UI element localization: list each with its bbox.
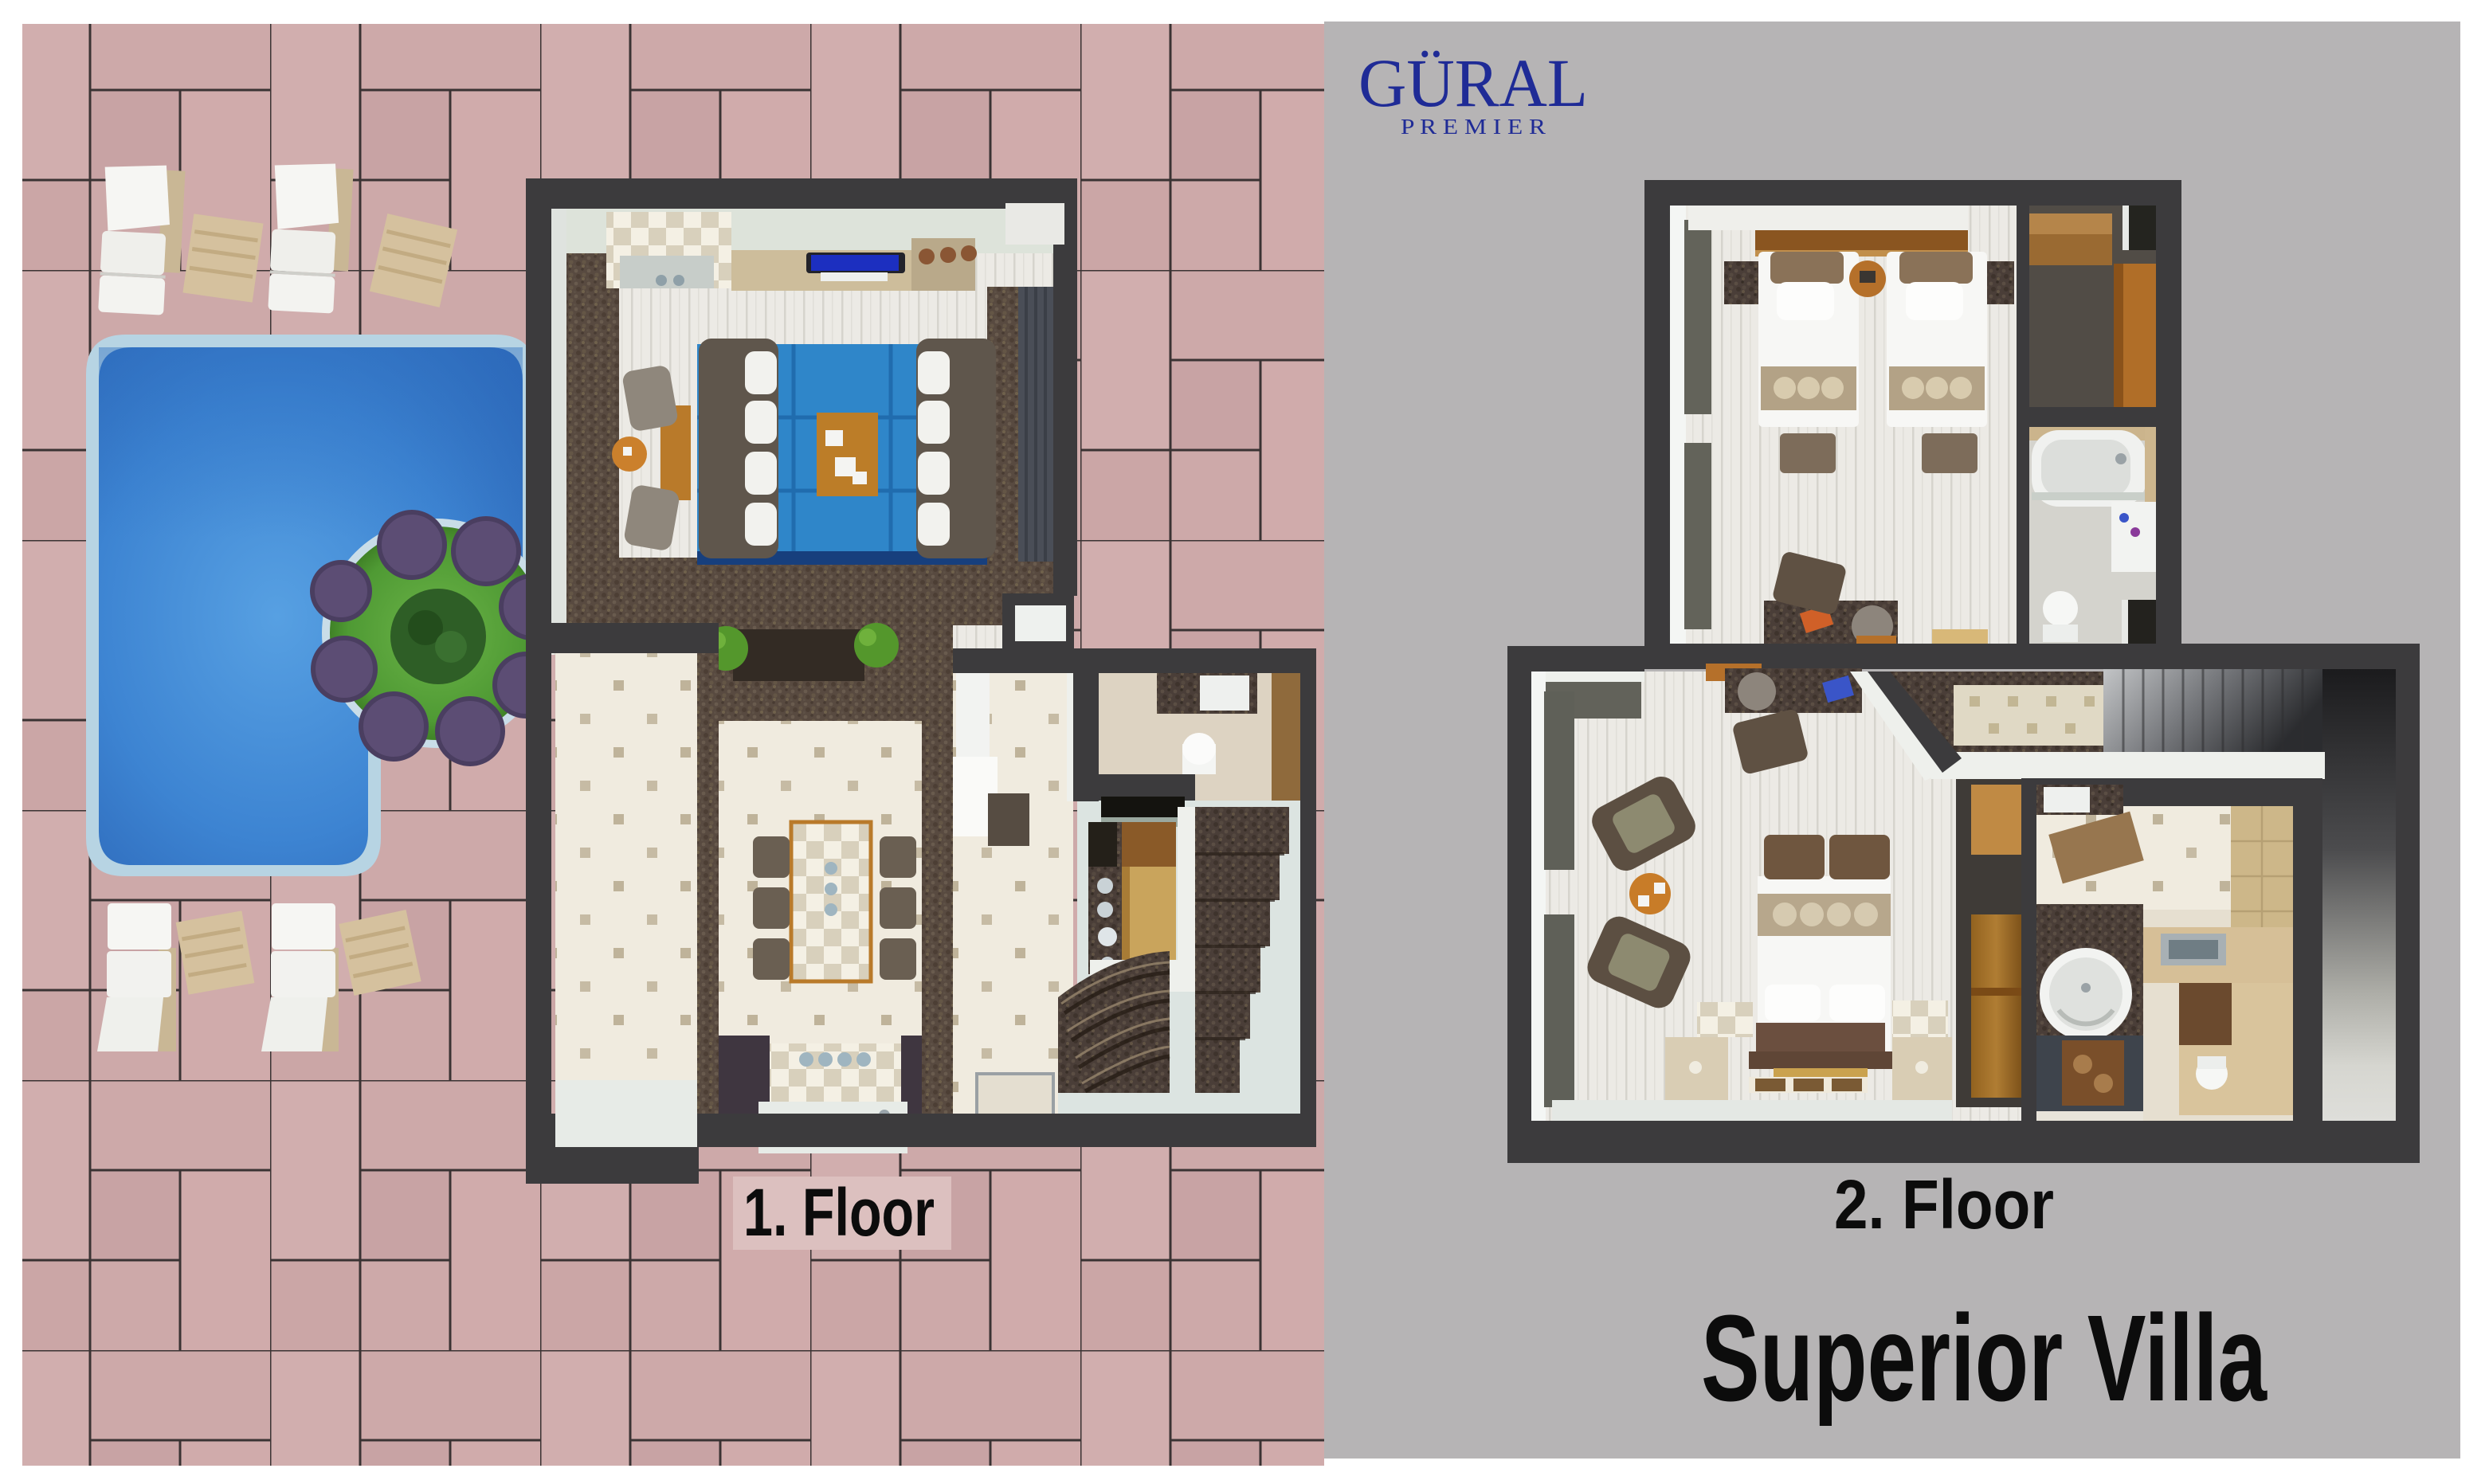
- svg-text:GÜRAL: GÜRAL: [1358, 45, 1588, 121]
- svg-text:Superior Villa: Superior Villa: [1701, 1290, 2268, 1427]
- svg-text:1. Floor: 1. Floor: [743, 1175, 935, 1250]
- svg-text:2. Floor: 2. Floor: [1834, 1166, 2054, 1243]
- svg-text:P R E M I E R: P R E M I E R: [1401, 115, 1546, 139]
